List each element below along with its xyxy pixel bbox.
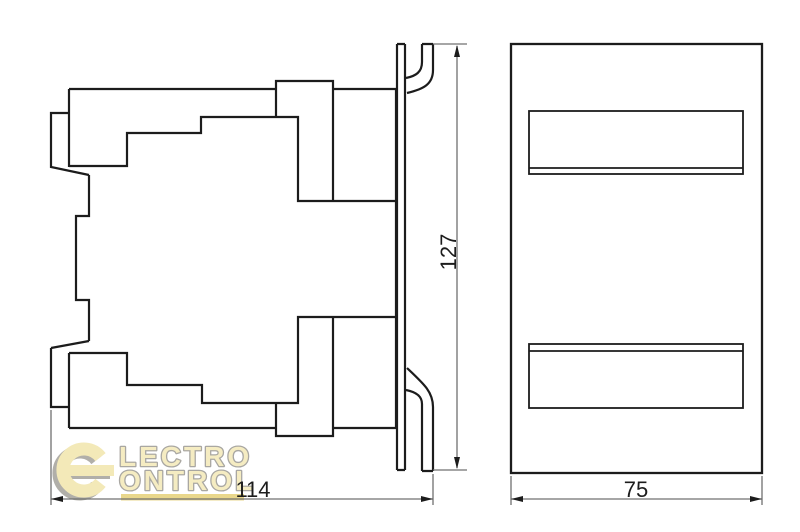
upper-label-window [529,111,743,174]
lower-label-window [529,344,743,408]
arrow-right-icon [421,496,433,502]
lower-terminal-block [276,317,333,436]
arrow-down-icon [454,457,460,469]
side-view [51,81,396,436]
contactor-dimension-drawing: LECTRO ONTROL [0,0,800,532]
electro-control-logo: LECTRO ONTROL [59,441,255,501]
dimension-arrows [51,45,762,502]
upper-step-profile [69,117,396,201]
technical-drawing-page: LECTRO ONTROL [0,0,800,532]
arrow-left-icon [51,496,63,502]
top-rail-clip [406,44,433,93]
dimension-lines [51,44,762,505]
dim-75-label: 75 [624,477,648,502]
arrow-right-icon [750,496,762,502]
lower-step-profile [69,317,396,403]
upper-terminal-block [276,81,333,201]
bottom-rail-clip [406,368,433,471]
left-face-profile [76,175,89,341]
din-rail-plate [397,44,405,470]
front-view [511,44,762,473]
logo-monogram-e [63,449,114,491]
arrow-left-icon [511,496,523,502]
dim-114-label: 114 [235,477,270,502]
din-rail [397,44,433,471]
dim-127-label: 127 [436,234,461,271]
arrow-up-icon [454,45,460,57]
